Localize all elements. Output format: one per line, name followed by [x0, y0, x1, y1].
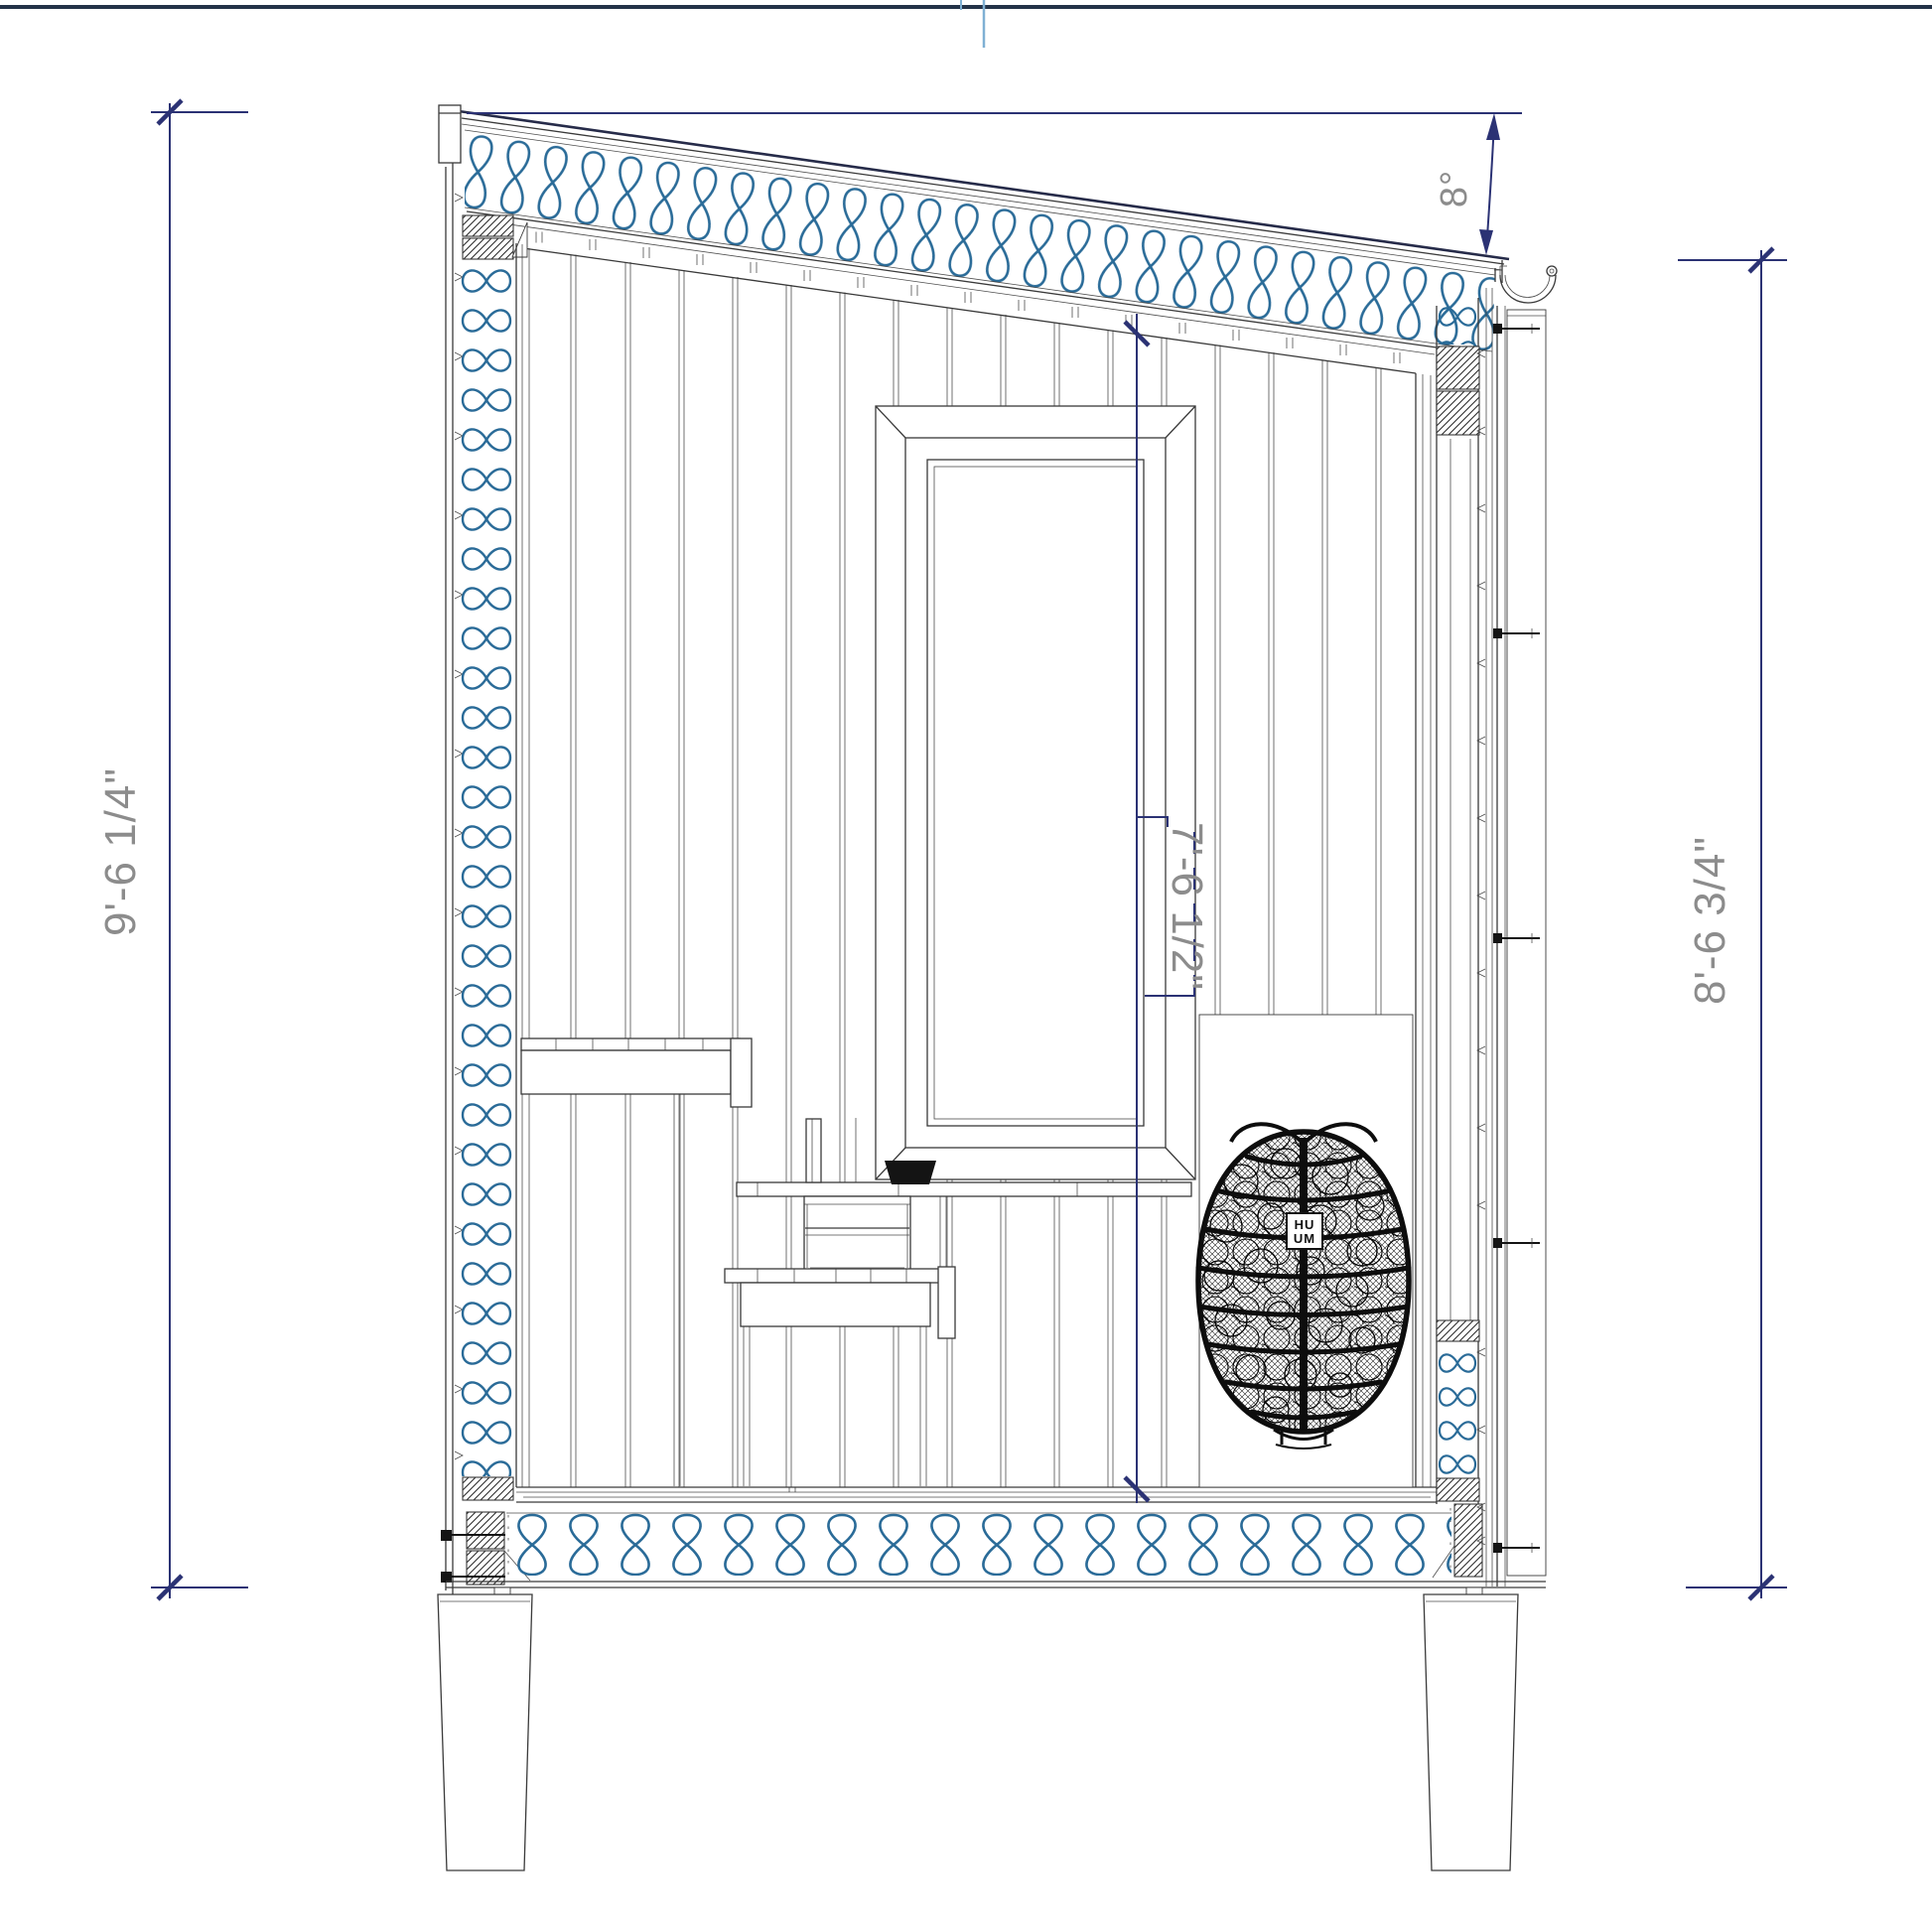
arrowhead-down-icon: [1479, 229, 1493, 255]
step-end-board: [938, 1267, 955, 1338]
heater-brand-plate: HU UM: [1287, 1213, 1322, 1249]
leveling-foot-left: [494, 1587, 510, 1594]
heater-brand-line2: UM: [1294, 1231, 1315, 1246]
dimension-right-wall-height: 8'-6 3/4": [1678, 248, 1787, 1599]
sauna-section-drawing-page: HU UM 9'-6 1/4" 8'-6 3/4" 7': [0, 0, 1932, 1932]
dim-label-roof-angle: 8°: [1434, 170, 1475, 207]
dimension-left-overall-height: 9'-6 1/4": [96, 100, 248, 1599]
floor-assembly: [446, 1487, 1546, 1587]
top-plate-left: [463, 215, 513, 236]
rim-joist-left: [467, 1512, 504, 1549]
step-fascia: [741, 1283, 930, 1326]
wall-insulation-right-top: [1438, 300, 1477, 345]
wall-insulation-left: [460, 261, 513, 1476]
roof-assembly: [439, 105, 1509, 373]
dim-label-overall-height: 9'-6 1/4": [96, 767, 145, 936]
bottom-plate-right: [1437, 1478, 1479, 1501]
dim-label-interior-height: 7'-6 1/2": [1163, 822, 1211, 991]
bottom-plate-left: [463, 1477, 513, 1500]
shelf-object: [885, 1161, 936, 1184]
window: [876, 406, 1195, 1179]
eave-blocking-wedge: [512, 222, 527, 257]
dim-label-wall-height: 8'-6 3/4": [1686, 836, 1734, 1005]
pedestal: [804, 1196, 910, 1274]
roof-fascia-left: [439, 105, 461, 163]
bench-upper: [521, 1038, 752, 1486]
upright-slat: [806, 1119, 821, 1182]
leg-left: [438, 1594, 532, 1870]
rainscreen-board-right: [1507, 310, 1546, 1576]
section-drawing: HU UM 9'-6 1/4" 8'-6 3/4" 7': [0, 0, 1932, 1932]
top-plate-right: [1437, 346, 1479, 389]
wall-left: [441, 163, 530, 1594]
wall-insulation-right-bottom: [1438, 1343, 1477, 1477]
arrowhead-up-icon: [1486, 113, 1500, 140]
heater-brand-line1: HU: [1295, 1217, 1315, 1232]
shelf-top: [737, 1182, 1191, 1196]
leveling-foot-right: [1466, 1587, 1482, 1594]
foundation-legs: [438, 1587, 1518, 1870]
sauna-heater: HU UM: [1198, 1015, 1413, 1487]
wall-right: [1416, 288, 1546, 1587]
shelf-support: [940, 1196, 946, 1268]
bench-end-board: [731, 1038, 752, 1107]
floor-insulation: [506, 1513, 1451, 1576]
anchor-bolt: [441, 1530, 452, 1541]
leg-right: [1424, 1594, 1518, 1870]
floor-board-joint: [789, 1487, 795, 1492]
bench-top: [521, 1038, 740, 1050]
window-outer-frame: [876, 406, 1195, 1179]
gutter: [1495, 266, 1557, 303]
bench-fascia: [521, 1050, 731, 1094]
